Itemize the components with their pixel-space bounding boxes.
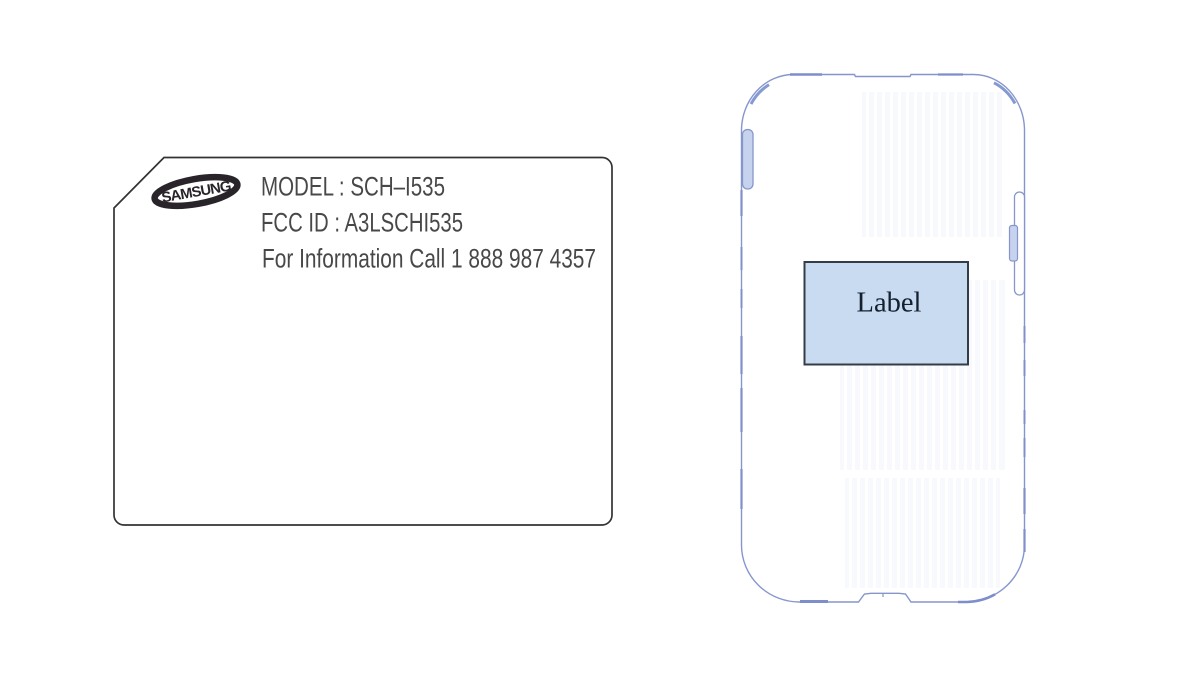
svg-text:MODEL : SCH–I535: MODEL : SCH–I535 [261,172,445,202]
svg-text:FCC ID : A3LSCHI535: FCC ID : A3LSCHI535 [261,208,463,238]
svg-text:For Information Call 1 888 987: For Information Call 1 888 987 4357 [262,244,596,274]
svg-text:Label: Label [857,288,922,319]
